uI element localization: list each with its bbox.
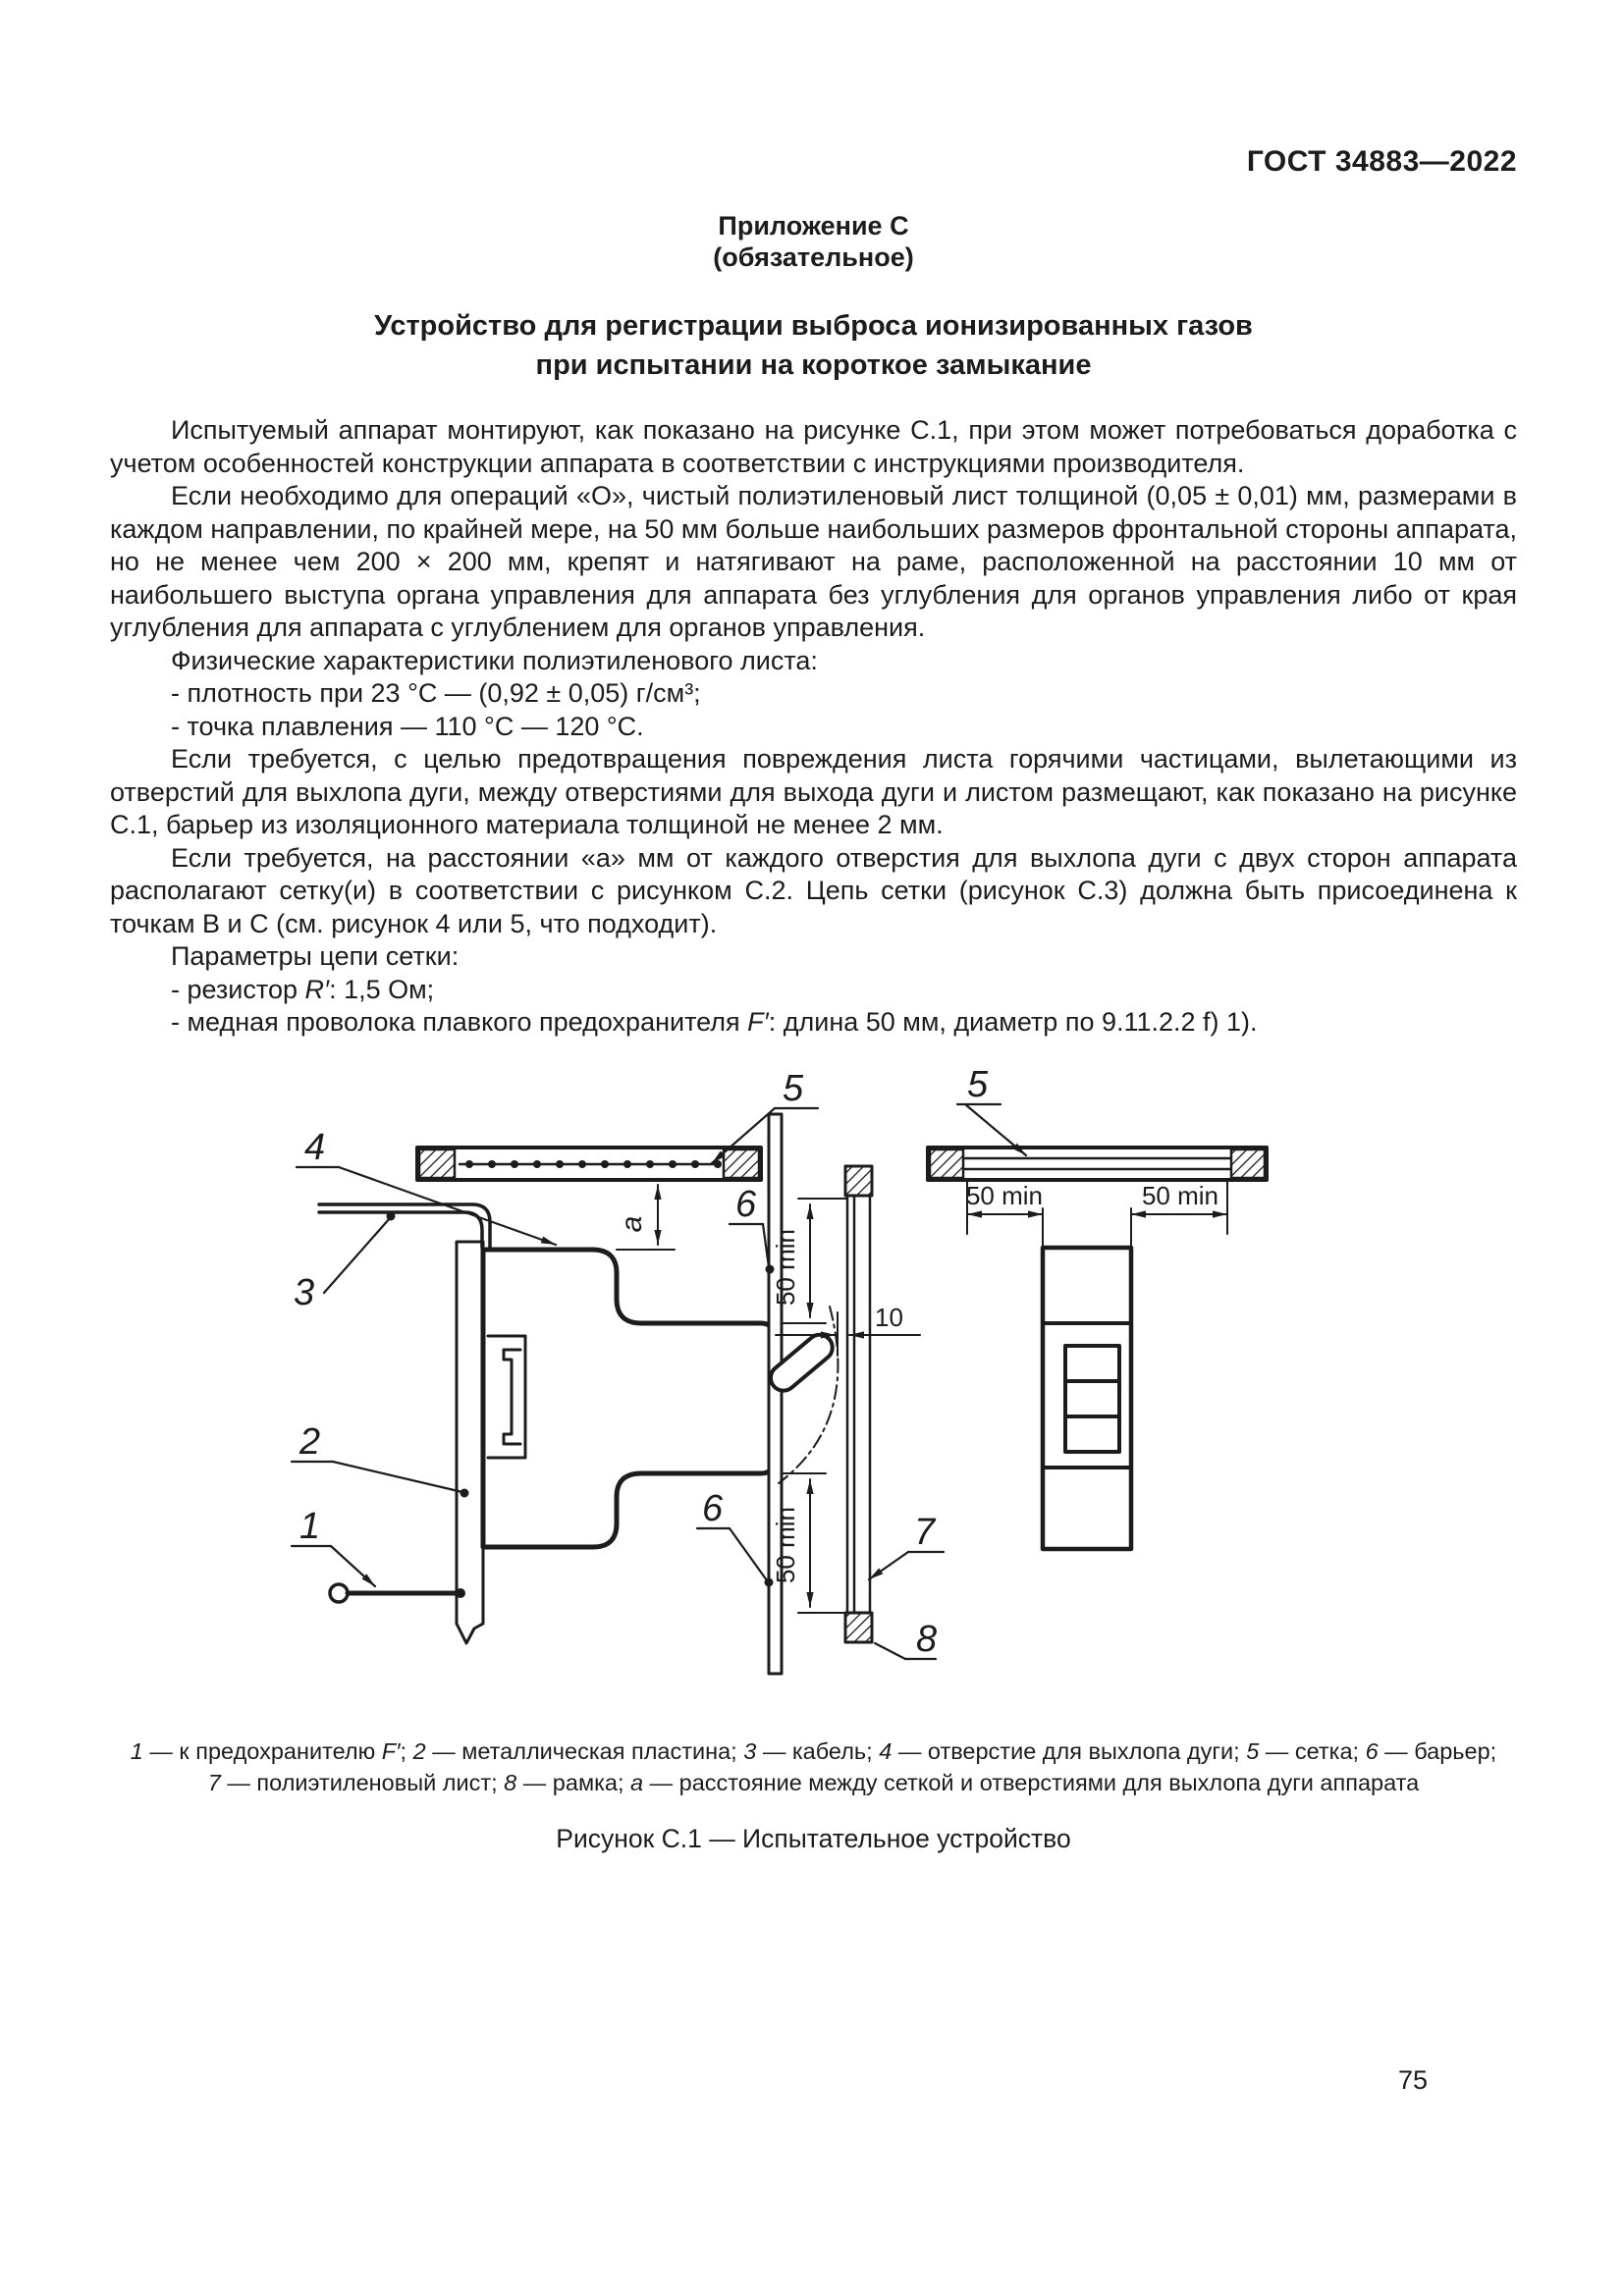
paragraph-grid-circuit-lead: Параметры цепи сетки: [110,940,1517,974]
apparatus-front-view [1043,1248,1131,1549]
polyethylene-sheet [847,1196,870,1613]
body-text: Испытуемый аппарат монтируют, как показа… [110,414,1517,1040]
callout-4: 4 [304,1127,325,1168]
callout-8: 8 [916,1619,937,1660]
callout-leader-2 [292,1462,469,1498]
dim-label-10: 10 [875,1303,903,1332]
dim-label-a: a [616,1215,648,1232]
dimension-50min-bottom [798,1479,847,1613]
callout-5-right: 5 [967,1064,989,1105]
callout-7: 7 [914,1512,937,1553]
figure-caption: 1 — к предохранителю F′; 2 — металлическ… [110,1735,1517,1798]
appendix-heading: Приложение С (обязательное) [110,210,1517,273]
callout-5-left: 5 [783,1068,804,1109]
barrier [769,1114,782,1674]
callout-leader-6-bottom [697,1528,774,1587]
callout-leader-3 [324,1211,396,1293]
figure-title: Рисунок С.1 — Испытательное устройство [110,1824,1517,1854]
fuse-terminal [330,1584,348,1602]
paragraph-grid-placement: Если требуется, на расстоянии «а» мм от … [110,842,1517,941]
figure-c1: 5 4 3 6 6 2 1 7 8 5 a 50 min 50 min 10 5… [280,1049,1517,1732]
document-page: ГОСТ 34883—2022 Приложение С (обязательн… [0,0,1624,1854]
page-title-line2: при испытании на короткое замыкание [110,346,1517,385]
frame-bottom-block [845,1613,872,1642]
appendix-label: Приложение С [110,210,1517,241]
callout-6-top: 6 [735,1184,757,1225]
page-number: 75 [1398,2065,1428,2096]
figure-caption-line2: 7 — полиэтиленовый лист; 8 — рамка; а — … [110,1767,1517,1798]
paragraph-characteristics-lead: Физические характеристики полиэтиленовог… [110,645,1517,678]
figure-c1-drawing: 5 4 3 6 6 2 1 7 8 5 a 50 min 50 min 10 5… [280,1049,1321,1727]
appendix-note: (обязательное) [110,241,1517,273]
page-title-line1: Устройство для регистрации выброса иониз… [110,306,1517,346]
callout-leader-1 [292,1546,375,1586]
dimension-50min-top [798,1199,847,1317]
page-title: Устройство для регистрации выброса иониз… [110,306,1517,385]
callout-6-bottom: 6 [702,1488,724,1529]
dim-label-50min-front-left: 50 min [966,1181,1043,1210]
metal-plate [457,1242,483,1643]
paragraph-barrier: Если требуется, с целью предотвращения п… [110,743,1517,842]
dim-label-50min-front-right: 50 min [1142,1181,1218,1210]
callout-2: 2 [298,1421,320,1463]
list-item-density: - плотность при 23 °С — (0,92 ± 0,05) г/… [110,677,1517,711]
list-item-melting-point: - точка плавления — 110 °С — 120 °С. [110,711,1517,744]
toggle-swing-arc [779,1307,838,1483]
list-item-fuse-wire: - медная проволока плавкого предохраните… [110,1006,1517,1040]
din-recess-detail [488,1336,525,1458]
figure-caption-line1: 1 — к предохранителю F′; 2 — металлическ… [110,1735,1517,1767]
callout-1: 1 [299,1506,320,1547]
callout-3: 3 [294,1272,314,1313]
dim-label-50min-bottom: 50 min [771,1506,800,1582]
callout-leader-7 [869,1552,944,1579]
grid-front-view [928,1148,1267,1180]
doc-code-header: ГОСТ 34883—2022 [110,147,1517,177]
dim-label-50min-top: 50 min [771,1228,800,1305]
paragraph-mounting: Испытуемый аппарат монтируют, как показа… [110,414,1517,480]
frame-top-block [845,1166,872,1196]
paragraph-sheet-requirements: Если необходимо для операций «О», чистый… [110,480,1517,645]
list-item-resistor: - резистор R′: 1,5 Ом; [110,974,1517,1007]
grid-side-view [417,1148,761,1180]
